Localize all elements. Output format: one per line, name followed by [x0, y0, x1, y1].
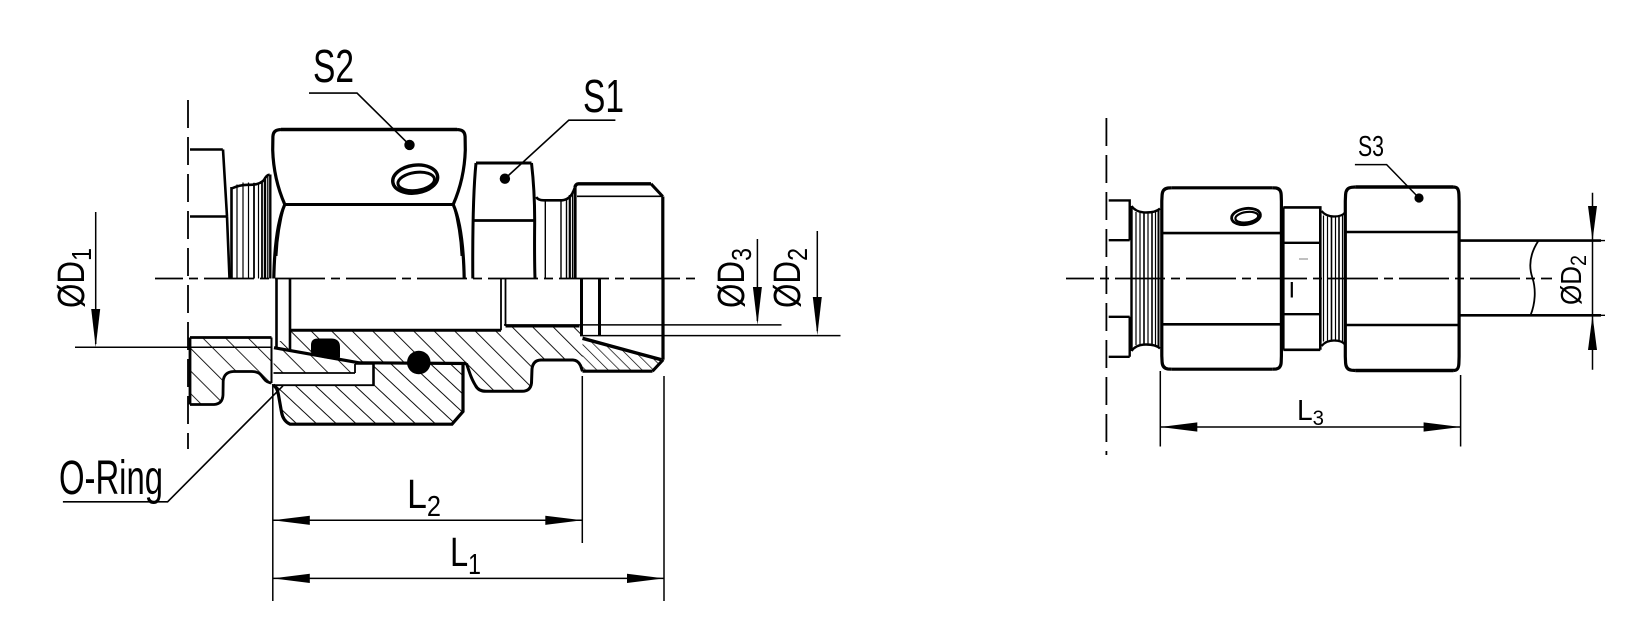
- svg-text:O-Ring: O-Ring: [59, 452, 163, 505]
- svg-text:S3: S3: [1358, 131, 1384, 163]
- svg-text:S2: S2: [313, 40, 354, 92]
- svg-text:S1: S1: [583, 70, 624, 122]
